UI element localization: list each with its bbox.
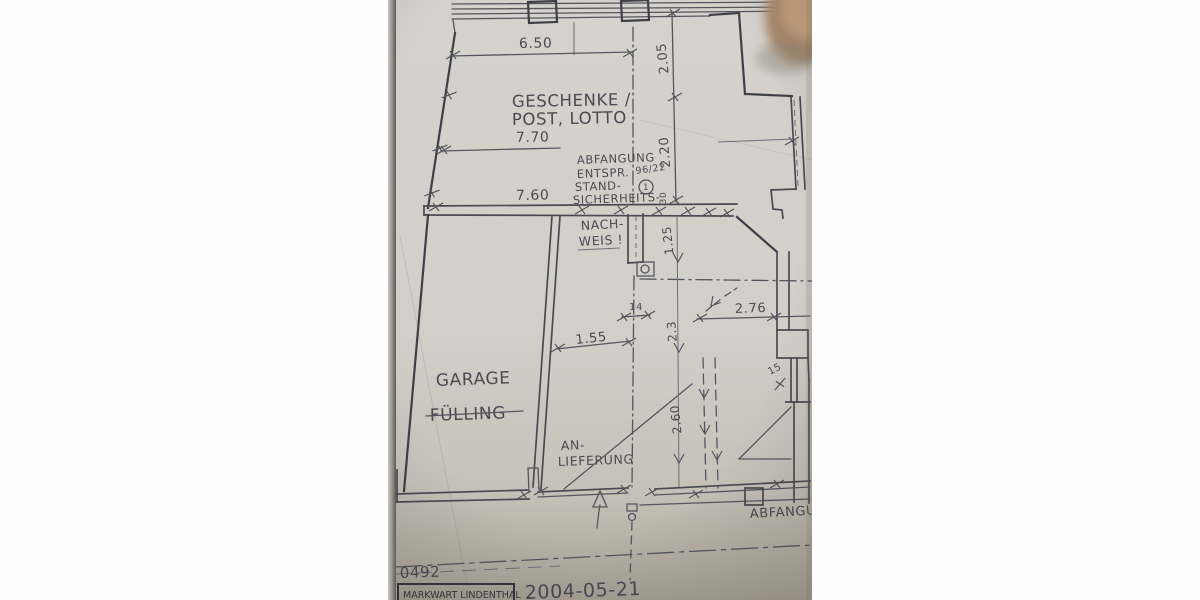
floor-plan-drawing: 6.50 7.70 7.60 2.05 2.20 30 1.25 2.3 2.6… xyxy=(0,0,1200,600)
floor-plan-photo: 6.50 7.70 7.60 2.05 2.20 30 1.25 2.3 2.6… xyxy=(0,0,1200,600)
paper-left-edge-shadow xyxy=(388,0,397,600)
vignette xyxy=(396,0,812,600)
paper-right-edge-shadow xyxy=(806,0,812,600)
